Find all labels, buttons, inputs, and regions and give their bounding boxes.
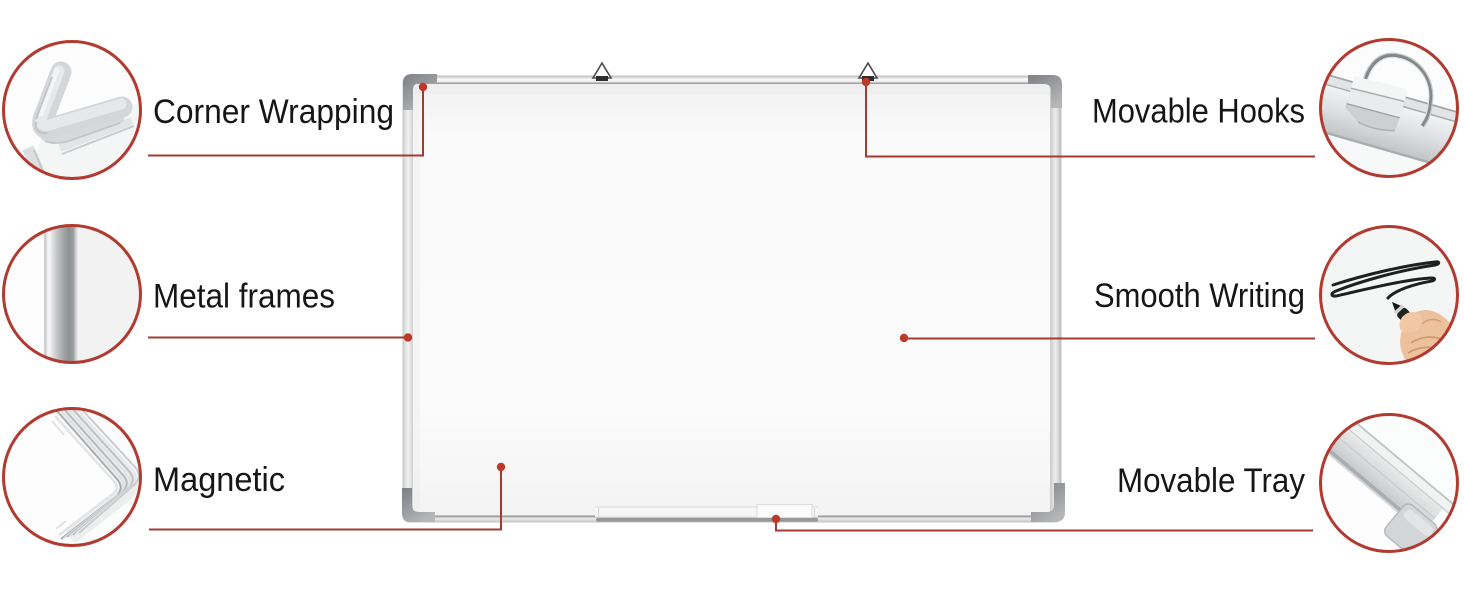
svg-text:Metal frames: Metal frames (153, 278, 335, 316)
svg-text:Smooth Writing: Smooth Writing (1094, 277, 1305, 315)
svg-text:Corner Wrapping: Corner Wrapping (153, 93, 394, 131)
svg-text:Movable Hooks: Movable Hooks (1092, 93, 1305, 131)
svg-text:Movable Tray: Movable Tray (1117, 462, 1305, 500)
svg-text:Magnetic: Magnetic (153, 461, 285, 499)
